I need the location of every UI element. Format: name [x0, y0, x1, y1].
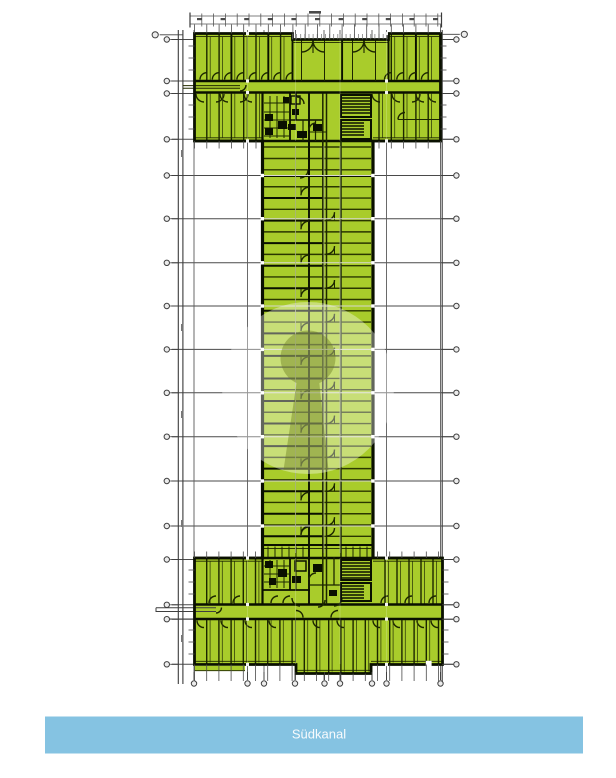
- svg-text:Südkanal: Südkanal: [292, 727, 346, 742]
